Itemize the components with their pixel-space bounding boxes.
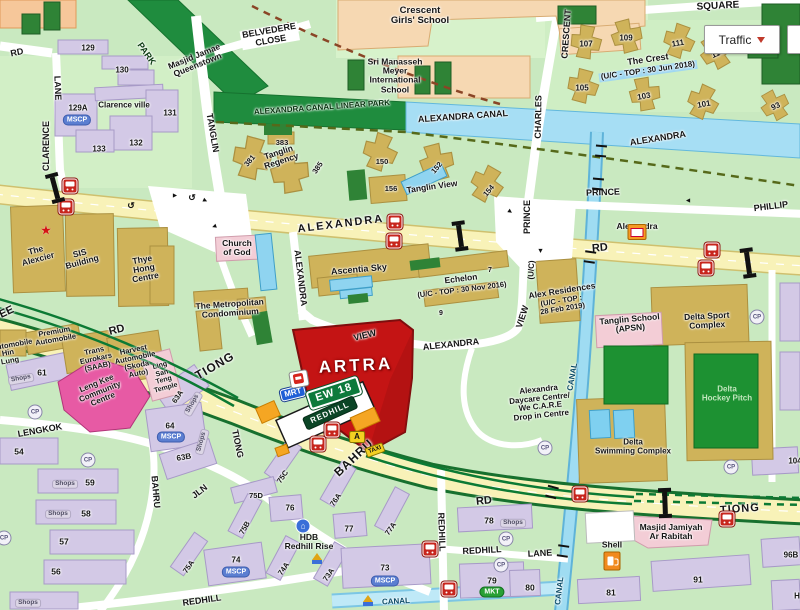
shops-badge-shops: Shops — [195, 428, 210, 455]
label-63b: 63B — [176, 452, 192, 463]
label-104: 104 — [788, 458, 800, 467]
label-prince: PRINCE — [523, 200, 533, 234]
petrol-station-icon — [604, 552, 621, 571]
label-152: 152 — [430, 161, 444, 176]
label-74a: 74A — [277, 561, 292, 577]
label-hdb-redhill-rise: HDB Redhill Rise — [285, 533, 334, 551]
label-leng-kee-community-centre: Leng Kee Community Centre — [75, 372, 125, 412]
direction-arrow-icon: ► — [505, 207, 515, 217]
temple-icon — [311, 553, 323, 565]
carpark-icon: CP — [724, 460, 739, 475]
label-alexandra: ALEXANDRA — [297, 214, 385, 236]
carpark-icon: CP — [538, 441, 553, 456]
label-57: 57 — [59, 537, 68, 546]
label-109: 109 — [619, 35, 632, 44]
label-tiong: TIONG — [193, 350, 237, 383]
label-clarence-ville: Clarence ville — [98, 102, 150, 111]
label-view: VIEW — [353, 329, 378, 344]
mscp-badge-mscp: MSCP — [157, 432, 185, 443]
label-tanglin: TANGLIN — [204, 113, 220, 153]
u-turn-icon: ↺ — [188, 194, 196, 203]
label-alexandra-canal: ALEXANDRA CANAL — [418, 109, 509, 125]
label-crescent-girls-school: Crescent Girls' School — [391, 6, 449, 27]
label-premium-automobile: Premium Automobile — [33, 324, 76, 347]
bus-stop-icon — [720, 512, 735, 527]
label-132: 132 — [129, 140, 142, 149]
chevron-down-icon — [757, 37, 765, 43]
label-58: 58 — [81, 509, 90, 518]
bus-stop-icon — [325, 423, 340, 438]
bus-stop-icon — [705, 243, 720, 258]
label-150: 150 — [376, 158, 389, 166]
label-381: 381 — [243, 154, 257, 169]
label-75c: 75C — [276, 469, 291, 485]
label-delta-hockey-pitch: Delta Hockey Pitch — [702, 385, 752, 402]
label-ee: EE — [0, 305, 16, 322]
label-101: 101 — [697, 100, 712, 111]
label-lengkok: LENGKOK — [17, 422, 63, 439]
label-81: 81 — [606, 588, 615, 597]
label-redhill: REDHILL — [462, 545, 501, 557]
carpark-icon: CP — [81, 453, 96, 468]
mrt-train-icon — [288, 369, 310, 389]
label-9: 9 — [439, 310, 443, 318]
label-75b: 75B — [238, 520, 252, 536]
label-76a: 76A — [329, 492, 344, 508]
label-park: PARK — [135, 41, 157, 67]
label-78: 78 — [484, 516, 493, 525]
label-tanglin-regency: Tanglin Regency — [260, 143, 299, 171]
mscp-badge-mscp: MSCP — [371, 576, 399, 587]
canal-bridge-icon — [595, 145, 607, 158]
label-63a: 63A — [171, 389, 186, 405]
label-tanglin-view: Tanglin View — [406, 179, 458, 195]
label-masjid-jamiyah-ar-rabitah: Masjid Jamiyah Ar Rabitah — [640, 523, 703, 541]
label-lane: LANE — [528, 549, 553, 560]
label-shell: Shell — [602, 540, 622, 549]
label-charles: CHARLES — [534, 95, 544, 139]
map-viewport[interactable]: SQUAREBELVEDERE CLOSERDLANECLARENCETANGL… — [0, 0, 800, 610]
bus-stop-icon — [311, 437, 326, 452]
label-93: 93 — [770, 101, 782, 113]
label-79: 79 — [487, 576, 496, 585]
label-square: SQUARE — [696, 0, 739, 13]
overpass-icon — [739, 247, 756, 279]
label-u-c: (U/C) — [527, 260, 537, 280]
overpass-icon — [658, 488, 672, 518]
label-156: 156 — [385, 185, 398, 193]
label-133: 133 — [92, 146, 105, 155]
label-lung: Lung — [0, 355, 19, 366]
label-80: 80 — [525, 583, 534, 592]
exit-badge-a: A — [349, 431, 365, 443]
label-rd: RD — [108, 323, 126, 339]
label-bahru: BAHRU — [332, 437, 376, 479]
label-lane: LANE — [52, 76, 63, 101]
label-ascentia-sky: Ascentia Sky — [331, 263, 388, 278]
shops-badge-shops: Shops — [15, 599, 41, 608]
shops-badge-shops: Shops — [500, 519, 526, 528]
label-trans-eurokars-saab: Trans Eurokars (SAAB) — [78, 344, 115, 375]
canal-bridge-icon — [592, 178, 604, 191]
mscp-badge-mscp: MSCP — [222, 567, 250, 578]
temple-icon — [362, 595, 374, 607]
label-130: 130 — [115, 67, 128, 76]
label-154: 154 — [482, 184, 496, 199]
u-turn-icon: ↺ — [127, 202, 135, 211]
label-383: 383 — [276, 139, 289, 147]
label-alexandra: ALEXANDRA — [422, 337, 479, 353]
label-56: 56 — [51, 567, 60, 576]
label-h: H — [794, 593, 800, 602]
label-canal: CANAL — [554, 577, 566, 606]
bus-stop-icon — [699, 261, 714, 276]
label-clarence: CLARENCE — [42, 121, 52, 171]
label-77: 77 — [345, 526, 354, 535]
label-64: 64 — [166, 423, 175, 432]
shops-badge-shops: Shops — [52, 480, 78, 489]
carpark-icon: CP — [750, 310, 765, 325]
carpark-icon: CP — [28, 405, 43, 420]
carpark-icon: CP — [494, 558, 509, 573]
label-church-of-god: Church of God — [222, 239, 252, 257]
label-alexandra-canal-linear-park: ALEXANDRA CANAL LINEAR PARK — [254, 99, 391, 117]
bus-stop-icon — [63, 179, 78, 194]
label-thye-hong-centre: Thye Hong Centre — [128, 253, 159, 285]
landmark-star-icon: ★ — [40, 224, 52, 237]
bus-stop-icon — [388, 215, 403, 230]
label-91: 91 — [693, 575, 702, 584]
label-103: 103 — [637, 92, 652, 103]
label-75a: 75A — [182, 559, 197, 575]
label-alexandra: ALEXANDRA — [292, 249, 309, 306]
bus-stop-icon — [573, 487, 588, 502]
label-rd: RD — [475, 495, 492, 508]
map-control-partial[interactable] — [787, 25, 800, 54]
bus-stop-icon — [387, 234, 402, 249]
label-masjid-jamae-queenstown: Masjid Jamae Queenstown — [167, 42, 225, 80]
direction-arrow-icon: ► — [537, 248, 544, 255]
artra-development-label: ARTRA — [318, 355, 393, 377]
label-alexandra: ALEXANDRA — [629, 130, 686, 148]
label-jln: JLN — [190, 483, 209, 501]
label-59: 59 — [85, 478, 94, 487]
overpass-icon — [451, 220, 468, 252]
label-delta-sport-complex: Delta Sport Complex — [684, 311, 730, 332]
traffic-dropdown-label: Traffic — [719, 33, 752, 47]
label-385: 385 — [311, 161, 325, 176]
carpark-icon: CP — [499, 532, 514, 547]
label-107: 107 — [579, 41, 592, 50]
label-111: 111 — [671, 39, 685, 50]
mkt-badge-mkt: MKT — [479, 587, 504, 598]
label-7: 7 — [488, 267, 492, 275]
canal-bridge-icon — [545, 485, 559, 499]
label-129a: 129A — [68, 105, 87, 114]
label-ling-san-teng-temple: Ling San Teng Temple — [148, 359, 179, 394]
label-alexandra-daycare-centre-we-c-a-r-e-drop-in-centre: Alexandra Daycare Centre/ We C.A.R.E Dro… — [508, 383, 572, 424]
label-129: 129 — [81, 45, 94, 54]
label-redhill: REDHILL — [182, 593, 222, 608]
map-overlay: SQUAREBELVEDERE CLOSERDLANECLARENCETANGL… — [0, 0, 800, 610]
direction-arrow-icon: ► — [200, 196, 209, 205]
shops-badge-shops: Shops — [183, 391, 203, 418]
label-77a: 77A — [384, 521, 399, 537]
mscp-badge-mscp: MSCP — [63, 115, 91, 126]
label-the-alexcier: The Alexcier — [19, 242, 56, 268]
canal-bridge-icon — [557, 544, 570, 557]
label-73a: 73A — [322, 567, 337, 583]
canal-bridge-icon — [584, 250, 597, 263]
direction-arrow-icon: ► — [685, 197, 692, 204]
label-73: 73 — [381, 565, 390, 574]
label-sri-manasseh-meyer-international-school: Sri Manasseh Meyer International School — [368, 58, 423, 95]
shops-badge-shops: Shops — [8, 373, 35, 386]
traffic-dropdown[interactable]: Traffic — [704, 25, 780, 54]
hdb-branch-icon: ⌂ — [296, 519, 311, 534]
direction-arrow-icon: ► — [210, 222, 219, 231]
label-54: 54 — [14, 447, 23, 456]
label-105: 105 — [575, 85, 588, 94]
post-office-icon — [628, 224, 647, 240]
bus-stop-icon — [423, 542, 438, 557]
label-delta-swimming-complex: Delta Swimming Complex — [595, 438, 671, 455]
label-crescent: CRESCENT — [560, 9, 573, 59]
label-the-metropolitan-condominium: The Metropolitan Condominium — [195, 297, 265, 320]
label-bahru: BAHRU — [149, 475, 162, 508]
label-tiong: TIONG — [229, 429, 244, 459]
label-tanglin-school-apsn: Tanglin School (APSN) — [599, 312, 661, 336]
label-sis-building: SIS Building — [62, 245, 100, 272]
label-76: 76 — [286, 505, 295, 514]
label-rd: RD — [10, 47, 25, 59]
label-61: 61 — [37, 368, 46, 377]
label-131: 131 — [163, 110, 176, 119]
label-74: 74 — [232, 557, 241, 566]
shops-badge-shops: Shops — [45, 510, 71, 519]
carpark-icon: CP — [0, 531, 12, 546]
label-96b: 96B — [784, 552, 799, 561]
label-view: VIEW — [515, 305, 531, 330]
bus-stop-icon — [442, 582, 457, 597]
direction-arrow-icon: ► — [172, 193, 179, 200]
label-75d: 75D — [249, 492, 263, 500]
label-canal: CANAL — [382, 597, 410, 607]
label-belvedere-close: BELVEDERE CLOSE — [240, 21, 301, 50]
label-phillip: PHILLIP — [753, 200, 788, 214]
